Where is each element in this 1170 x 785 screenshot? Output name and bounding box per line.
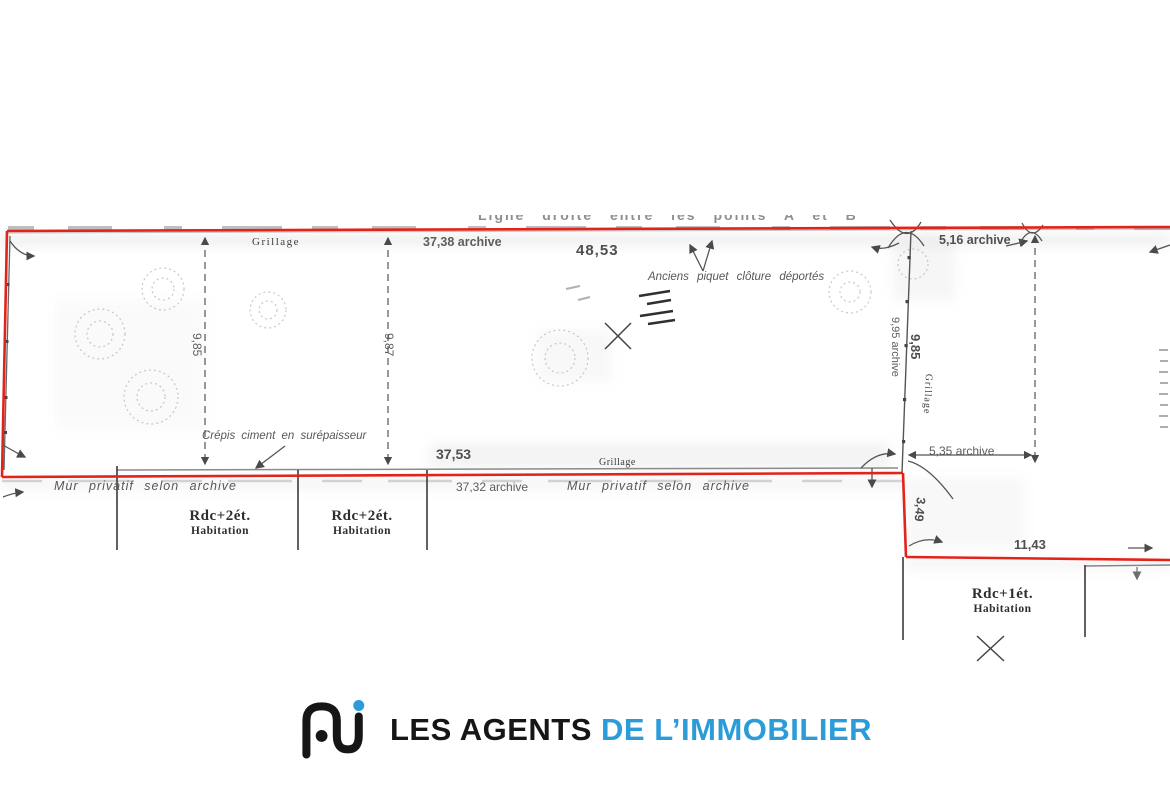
building-label-3: Rdc+1ét. Habitation (935, 586, 1070, 615)
note-crepis: Crépis ciment en surépaisseur (202, 430, 366, 442)
dim-9-85-right: 9,85 (908, 334, 923, 359)
agency-name: LES AGENTS DE L’IMMOBILIER (390, 698, 872, 762)
dim-37-53: 37,53 (436, 446, 471, 462)
building-label-2: Rdc+2ét. Habitation (297, 508, 427, 537)
agency-logo: LES AGENTS DE L’IMMOBILIER (298, 698, 872, 762)
fence-label-bottom: Grillage (599, 457, 636, 468)
agency-name-black: LES AGENTS (390, 712, 592, 747)
logo-eye-dot (316, 730, 328, 742)
fence-label-top: Grillage (252, 236, 300, 248)
note-mur-privatif-left: Mur privatif selon archive (54, 479, 237, 493)
agency-logo-icon (298, 698, 374, 762)
edge-text-fragment (1159, 350, 1168, 427)
dim-5-16-archive: 5,16 archive (939, 233, 1011, 247)
building-type: Rdc+2ét. (297, 508, 427, 525)
top-boundary-note: Ligne droite entre les points A et B (478, 215, 952, 229)
building-use: Habitation (935, 603, 1070, 615)
building-type: Rdc+1ét. (935, 586, 1070, 603)
logo-blue-dot (353, 700, 364, 711)
dim-9-85-left: 9,85 (190, 333, 204, 356)
building-use: Habitation (297, 525, 427, 537)
dim-48-53: 48,53 (576, 242, 619, 259)
note-mur-privatif-center: Mur privatif selon archive (567, 479, 750, 493)
plan-drawing (0, 0, 1170, 785)
dim-37-32-archive: 37,32 archive (456, 480, 528, 494)
building-type: Rdc+2ét. (155, 508, 285, 525)
dim-9-95-archive: 9,95 archive (889, 317, 901, 377)
dim-11-43: 11,43 (1014, 537, 1046, 552)
fence-label-right: Grillage (921, 373, 934, 414)
building-label-1: Rdc+2ét. Habitation (155, 508, 285, 537)
note-anciens-piquet: Anciens piquet clôture déportés (648, 271, 824, 283)
dim-3-49: 3,49 (912, 497, 928, 523)
dim-9-87: 9,87 (382, 333, 396, 356)
faint-dash-marks (566, 286, 590, 300)
building-use: Habitation (155, 525, 285, 537)
dim-5-35-archive: 5,35 archive (929, 444, 994, 458)
x-mark-icon (977, 636, 1004, 661)
agency-name-blue: DE L’IMMOBILIER (601, 712, 872, 747)
survey-plan: Ligne droite entre les points A et B Gri… (0, 0, 1170, 785)
dim-37-38-archive: 37,38 archive (423, 235, 502, 249)
field-dash-marks (639, 291, 675, 324)
